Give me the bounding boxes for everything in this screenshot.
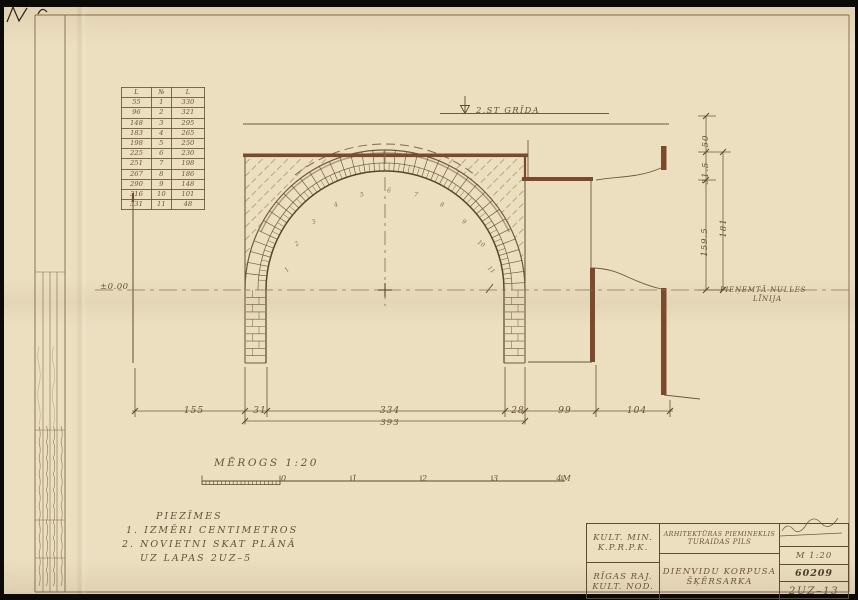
dim-right-50: 50 xyxy=(701,135,711,148)
sheet-no-value: 2UZ–13 xyxy=(789,585,839,597)
table-cell: 10 xyxy=(151,189,171,199)
title-block-signature-cell xyxy=(780,524,848,547)
scanned-drawing-sheet: L№L 551330962321148329518342651985250225… xyxy=(0,0,858,600)
dim-334: 334 xyxy=(380,406,400,416)
table-cell: 3 xyxy=(151,118,171,128)
table-cell: 48 xyxy=(171,200,204,210)
table-cell: 225 xyxy=(122,149,152,159)
dim-99: 99 xyxy=(558,406,571,416)
table-row: 2256230 xyxy=(122,149,205,159)
table-row: 1483295 xyxy=(122,118,205,128)
drawing-line-1: DIENVIDU KORPUSA xyxy=(663,567,776,577)
arch-point-number: 6 xyxy=(387,188,391,195)
dim-right-181: 181 xyxy=(719,218,729,237)
dim-31: 31 xyxy=(253,406,266,416)
table-cell: 11 xyxy=(151,200,171,210)
dim-393: 393 xyxy=(380,418,399,428)
table-row: 2678186 xyxy=(122,169,205,179)
table-header-cell: L xyxy=(122,88,152,98)
wall-top-edge xyxy=(243,154,528,158)
scale-value: M 1:20 xyxy=(796,551,833,561)
table-cell: 4 xyxy=(151,128,171,138)
table-row: 31610101 xyxy=(122,189,205,199)
table-cell: 186 xyxy=(171,169,204,179)
dim-155: 155 xyxy=(184,406,204,416)
scale-tick-1: 1 xyxy=(352,474,358,483)
dim-right-159-5: 159.5 xyxy=(700,227,710,256)
table-cell: 7 xyxy=(151,159,171,169)
table-row: 551330 xyxy=(122,98,205,108)
dim-right-31-5: 31.5 xyxy=(701,162,711,185)
title-block-sheet-no: 2UZ–13 xyxy=(780,582,848,600)
table-cell: 290 xyxy=(122,179,152,189)
table-cell: 2 xyxy=(151,108,171,118)
signature-strip-grid xyxy=(35,272,65,592)
table-cell: 331 xyxy=(122,200,152,210)
table-cell: 265 xyxy=(171,128,204,138)
table-row: 2909148 xyxy=(122,179,205,189)
scale-title: MĒROGS 1:20 xyxy=(214,457,319,469)
zero-level-label: ±0.00 xyxy=(100,282,129,292)
org-line-4: KULT. NOD. xyxy=(592,582,654,592)
table-cell: 267 xyxy=(122,169,152,179)
table-cell: 96 xyxy=(122,108,152,118)
table-cell: 330 xyxy=(171,98,204,108)
title-block-scale: M 1:20 xyxy=(780,547,848,565)
table-cell: 9 xyxy=(151,179,171,189)
null-line-label-2: LĪNIJA xyxy=(753,295,782,303)
org-line-3: RĪGAS RAJ. xyxy=(593,572,652,582)
floor-level-label: 2.ST GRĪDA xyxy=(476,106,540,116)
table-row: 1985250 xyxy=(122,138,205,148)
scale-tick-3: 3 xyxy=(493,474,499,483)
table-cell: 5 xyxy=(151,138,171,148)
title-block-org-bottom: RĪGAS RAJ. KULT. NOD. xyxy=(587,563,660,600)
table-cell: 295 xyxy=(171,118,204,128)
table-cell: 183 xyxy=(122,128,152,138)
scale-tick-2: 2 xyxy=(422,474,428,483)
paper: L№L 551330962321148329518342651985250225… xyxy=(4,7,855,594)
notes-line-2: 2. NOVIETNI SKAT PLĀNĀ xyxy=(122,539,297,550)
title-block-monument: ARHITEKTŪRAS PIEMINEKLIS TURAIDAS PILS xyxy=(660,524,780,554)
null-line-label-1: PIEŅEMTĀ NULLES xyxy=(720,286,806,294)
table-cell: 6 xyxy=(151,149,171,159)
floor-level-lines xyxy=(243,114,669,125)
corner-pen-marks xyxy=(7,7,47,22)
title-block: KULT. MIN. K.P.R.P.K. RĪGAS RAJ. KULT. N… xyxy=(586,523,849,599)
scale-tick-4m: 4M xyxy=(556,474,571,483)
table-cell: 250 xyxy=(171,138,204,148)
table-header-cell: № xyxy=(151,88,171,98)
table-cell: 148 xyxy=(171,179,204,189)
dim-104: 104 xyxy=(627,406,647,416)
arch-point-number: 5 xyxy=(359,191,364,199)
drawing-line-2: ŠĶĒRSARKA xyxy=(686,577,752,587)
table-cell: 148 xyxy=(122,118,152,128)
scale-tick-0: 0 xyxy=(281,474,287,483)
table-cell: 321 xyxy=(171,108,204,118)
table-cell: 230 xyxy=(171,149,204,159)
dim-28: 28 xyxy=(511,406,524,416)
table-cell: 1 xyxy=(151,98,171,108)
title-block-drawing-title: DIENVIDU KORPUSA ŠĶĒRSARKA xyxy=(660,554,780,600)
table-row: 3311148 xyxy=(122,200,205,210)
arch-measurement-table: L№L 551330962321148329518342651985250225… xyxy=(121,87,205,210)
table-row: 1834265 xyxy=(122,128,205,138)
table-cell: 55 xyxy=(122,98,152,108)
inventory-no-value: 60209 xyxy=(795,568,833,579)
table-cell: 8 xyxy=(151,169,171,179)
table-row: 2517198 xyxy=(122,159,205,169)
title-block-inventory-no: 60209 xyxy=(780,565,848,582)
level-mark-icon xyxy=(461,96,470,114)
monument-line-2: TURAIDAS PILS xyxy=(688,538,751,546)
graphic-scale-bar xyxy=(202,476,565,485)
org-line-2: K.P.R.P.K. xyxy=(598,543,649,553)
table-header-row: L№L xyxy=(122,88,205,98)
table-cell: 198 xyxy=(122,138,152,148)
scale-subdivision-ticks xyxy=(202,481,280,485)
org-line-1: KULT. MIN. xyxy=(593,533,653,543)
table-row: 962321 xyxy=(122,108,205,118)
table-cell: 198 xyxy=(171,159,204,169)
table-header-cell: L xyxy=(171,88,204,98)
monument-line-1: ARHITEKTŪRAS PIEMINEKLIS xyxy=(664,531,776,538)
notes-title: PIEZĪMES xyxy=(156,511,223,522)
wall-section-profile xyxy=(522,140,700,399)
title-block-org-top: KULT. MIN. K.P.R.P.K. xyxy=(587,524,660,563)
table-cell: 251 xyxy=(122,159,152,169)
notes-line-1: 1. IZMĒRI CENTIMETROS xyxy=(126,525,298,536)
table-cell: 316 xyxy=(122,189,152,199)
notes-line-3: UZ LAPAS 2UZ–5 xyxy=(140,553,252,564)
table-cell: 101 xyxy=(171,189,204,199)
